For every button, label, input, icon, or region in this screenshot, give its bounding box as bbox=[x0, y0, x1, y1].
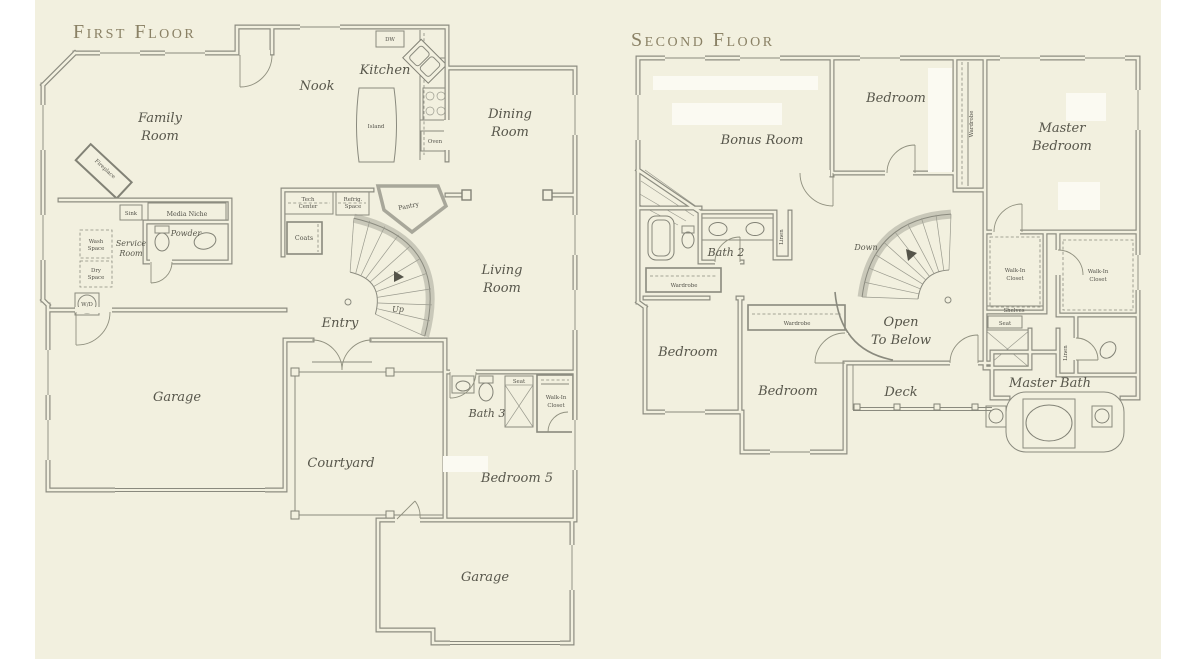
master-bedroom-label-2: Bedroom bbox=[1031, 139, 1092, 154]
open-to-below-label: Open bbox=[883, 315, 918, 330]
courtyard-label: Courtyard bbox=[307, 456, 374, 471]
sf-toilet-room bbox=[1097, 339, 1119, 362]
living-room-label: Living bbox=[481, 263, 523, 278]
service-room-label-2: Room bbox=[118, 249, 143, 258]
sf-deck-rails bbox=[853, 363, 992, 411]
dry-space-label-2: Space bbox=[88, 275, 105, 281]
seat-label: Seat bbox=[513, 379, 526, 385]
linen-right-label: Linen bbox=[1063, 345, 1069, 361]
bath2-label: Bath 2 bbox=[707, 246, 745, 259]
dining-room-label: Dining bbox=[487, 107, 532, 122]
shelves-label: Shelves bbox=[1003, 308, 1024, 314]
living-room-label-2: Room bbox=[482, 281, 521, 296]
seat-label-2: Seat bbox=[999, 321, 1012, 327]
open-to-below-label-2: To Below bbox=[871, 333, 931, 348]
garage-label: Garage bbox=[153, 390, 201, 405]
second-floor-title: Second Floor bbox=[631, 29, 775, 51]
bedroom-mid-label: Bedroom bbox=[757, 384, 818, 399]
entry-label: Entry bbox=[321, 316, 359, 331]
ff-tech-center-cabinet bbox=[285, 192, 333, 214]
refrig-space-label: Refrig. bbox=[344, 197, 363, 203]
oven-label: Oven bbox=[428, 139, 443, 145]
bath3-label: Bath 3 bbox=[468, 407, 506, 420]
refrig-space-label-2: Space bbox=[345, 204, 362, 210]
wardrobe-left-label: Wardrobe bbox=[671, 283, 698, 289]
first-floor: First Floor Family Room Nook Kitchen Isl… bbox=[43, 21, 575, 645]
floor-plan-sheet: First Floor Family Room Nook Kitchen Isl… bbox=[0, 0, 1193, 659]
family-room-label: Family bbox=[137, 111, 183, 126]
bedroom-left-label: Bedroom bbox=[657, 345, 718, 360]
walkin-closet2-label: Walk-In bbox=[1088, 269, 1109, 275]
walkin-closet2-label-2: Closet bbox=[1089, 277, 1107, 283]
walkin-closet1-label-2: Closet bbox=[1006, 276, 1024, 282]
wd-label: W/D bbox=[81, 302, 93, 308]
walkin-closet-label: Walk-In bbox=[546, 395, 567, 401]
powder-label: Powder bbox=[170, 229, 203, 238]
service-room-label: Service bbox=[116, 239, 147, 248]
linen-left-label: Linen bbox=[779, 229, 785, 245]
dw-label: DW bbox=[385, 37, 395, 43]
island-label: Island bbox=[368, 124, 385, 130]
deck-label: Deck bbox=[883, 385, 917, 400]
wardrobe-top-label: Wardrobe bbox=[969, 111, 975, 138]
wardrobe-mid-label: Wardrobe bbox=[784, 321, 811, 327]
master-bath-label: Master Bath bbox=[1008, 376, 1091, 391]
dining-room-label-2: Room bbox=[490, 125, 529, 140]
first-floor-title: First Floor bbox=[73, 21, 196, 43]
bedroom5-label: Bedroom 5 bbox=[480, 471, 553, 486]
floor-plans-drawing: First Floor Family Room Nook Kitchen Isl… bbox=[0, 0, 1193, 659]
rear-garage-label: Garage bbox=[461, 570, 509, 585]
ff-dry-space bbox=[80, 261, 112, 287]
dry-space-label: Dry bbox=[91, 268, 102, 274]
wash-space-label: Wash bbox=[89, 239, 104, 245]
walkin-closet-label-2: Closet bbox=[547, 403, 565, 409]
ff-courtyard-outline bbox=[291, 362, 445, 519]
ff-cooktop-icon bbox=[423, 88, 447, 120]
second-floor: Second Floor Bonus Room Bedroom Master B… bbox=[631, 29, 1138, 452]
nook-label: Nook bbox=[299, 79, 335, 94]
sf-wardrobe-top bbox=[962, 62, 968, 186]
master-bedroom-label: Master bbox=[1038, 121, 1087, 136]
sf-walkin-closet-2 bbox=[1063, 240, 1133, 310]
sink-label: Sink bbox=[125, 211, 138, 217]
walkin-closet1-label: Walk-In bbox=[1005, 268, 1026, 274]
up-label: Up bbox=[392, 305, 404, 314]
family-room-label-2: Room bbox=[140, 129, 179, 144]
ff-whiteout bbox=[443, 456, 488, 472]
tech-center-label: Tech bbox=[302, 197, 315, 203]
tech-center-label-2: Center bbox=[299, 204, 318, 210]
sf-master-tub-icon bbox=[986, 392, 1124, 452]
bonus-room-label: Bonus Room bbox=[720, 133, 804, 148]
wash-space-label-2: Space bbox=[88, 246, 105, 252]
coats-label: Coats bbox=[295, 235, 313, 242]
down-label: Down bbox=[853, 243, 877, 252]
bedroom-top-label: Bedroom bbox=[865, 91, 926, 106]
kitchen-label: Kitchen bbox=[359, 63, 411, 78]
media-niche-label: Media Niche bbox=[167, 211, 208, 218]
